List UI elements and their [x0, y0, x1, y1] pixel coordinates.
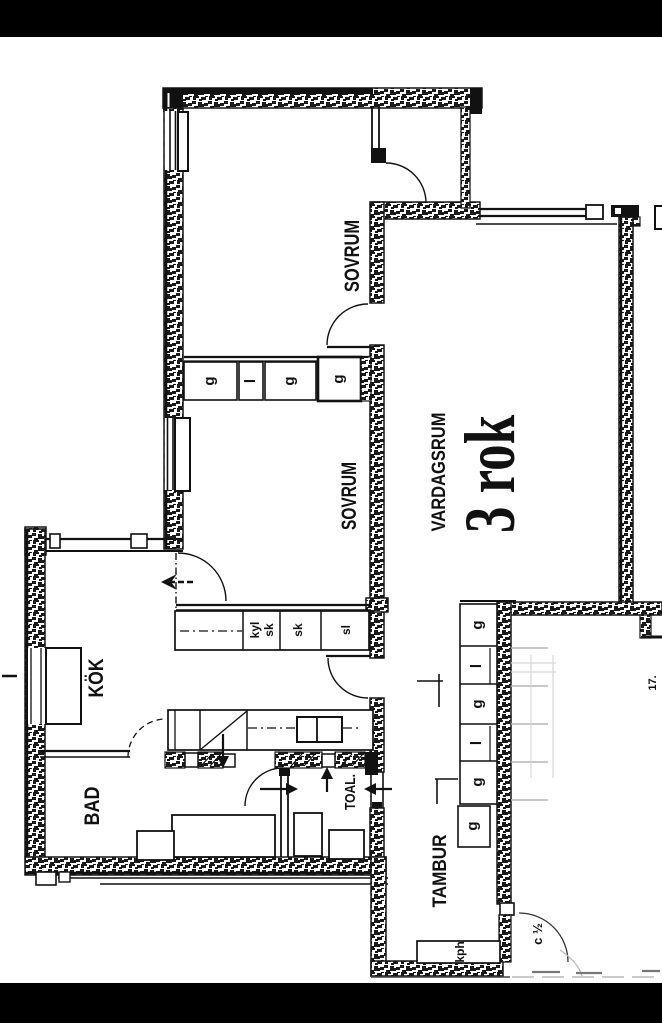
svg-text:g: g	[469, 777, 486, 786]
svg-text:g: g	[281, 376, 298, 385]
svg-text:sl: sl	[339, 625, 353, 635]
svg-text:VARDAGSRUM: VARDAGSRUM	[429, 413, 450, 532]
svg-text:sk: sk	[291, 623, 305, 637]
svg-text:SOVRUM: SOVRUM	[341, 220, 364, 292]
svg-text:l: l	[468, 741, 485, 745]
svg-text:SOVRUM: SOVRUM	[338, 462, 361, 530]
svg-text:kph: kph	[453, 941, 467, 962]
svg-text:TAMBUR: TAMBUR	[430, 834, 451, 907]
svg-text:BAD: BAD	[81, 787, 104, 826]
svg-text:sk: sk	[262, 623, 276, 637]
svg-text:l: l	[242, 379, 259, 383]
svg-text:KÖK: KÖK	[85, 659, 108, 698]
svg-text:l: l	[468, 664, 485, 668]
svg-text:17.: 17.	[647, 675, 659, 690]
svg-text:g: g	[330, 374, 347, 383]
svg-text:c ½: c ½	[530, 923, 545, 945]
svg-text:kyl: kyl	[248, 622, 262, 639]
svg-text:g: g	[201, 376, 218, 385]
svg-text:3 rok: 3 rok	[450, 415, 530, 533]
svg-text:TOAL.: TOAL.	[342, 774, 359, 810]
svg-text:g: g	[469, 699, 486, 708]
svg-text:g: g	[469, 620, 486, 629]
svg-text:g: g	[464, 821, 481, 830]
